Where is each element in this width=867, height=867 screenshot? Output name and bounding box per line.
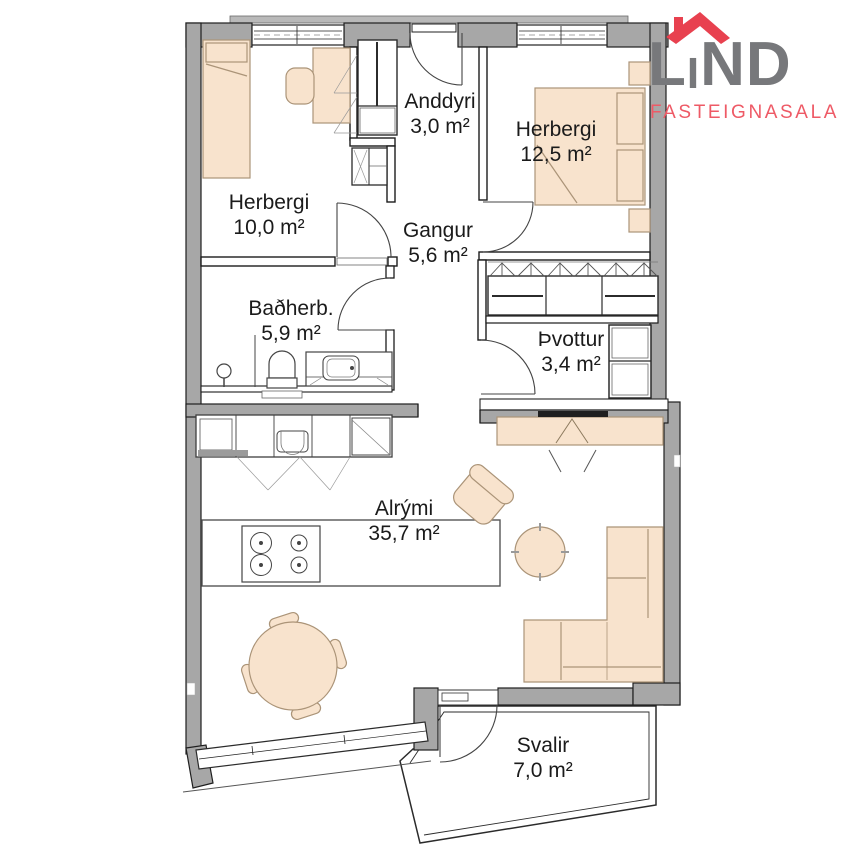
tv-icon bbox=[538, 411, 608, 417]
room-name: Þvottur bbox=[538, 328, 605, 351]
room-label-alrymi: Alrými 35,7 m² bbox=[368, 496, 439, 546]
kitchen-sink bbox=[277, 431, 308, 452]
kitchen-island bbox=[202, 520, 500, 586]
toilet-icon bbox=[267, 351, 297, 388]
brand-subtitle: FASTEIGNASALA bbox=[650, 102, 839, 124]
dining-table bbox=[240, 611, 348, 721]
hall-closet bbox=[488, 262, 658, 315]
room-name: Herbergi bbox=[229, 191, 310, 214]
brand-letters-nd: ND bbox=[700, 34, 792, 96]
room-area: 5,9 m² bbox=[248, 321, 333, 346]
shower-icon bbox=[217, 364, 231, 387]
room-label-thvottur: Þvottur 3,4 m² bbox=[538, 327, 605, 377]
room-label-svalir: Svalir 7,0 m² bbox=[513, 733, 573, 783]
bedroom1-furniture bbox=[203, 40, 350, 178]
tv-sideboard bbox=[497, 411, 663, 472]
room-area: 3,0 m² bbox=[404, 114, 475, 139]
desk-chair bbox=[286, 68, 314, 104]
stove-icon bbox=[242, 526, 320, 582]
room-name: Alrými bbox=[375, 497, 433, 520]
laundry-door bbox=[481, 340, 535, 394]
room-area: 10,0 m² bbox=[229, 215, 310, 240]
room-area: 5,6 m² bbox=[403, 243, 473, 268]
room-label-gangur: Gangur 5,6 m² bbox=[403, 218, 473, 268]
desk bbox=[313, 48, 350, 123]
side-table bbox=[511, 523, 569, 581]
room-name: Gangur bbox=[403, 219, 473, 242]
brand-wordmark: L I ND bbox=[648, 34, 792, 96]
brand-letter-i: I bbox=[687, 52, 700, 96]
bedroom1-door bbox=[337, 203, 391, 257]
room-label-anddyri: Anddyri 3,0 m² bbox=[404, 89, 475, 139]
entrance-door bbox=[410, 33, 462, 85]
bedroom2-door bbox=[483, 202, 533, 252]
room-label-badherb: Baðherb. 5,9 m² bbox=[248, 296, 333, 346]
room-name: Herbergi bbox=[516, 118, 597, 141]
room-area: 7,0 m² bbox=[513, 758, 573, 783]
room-area: 35,7 m² bbox=[368, 521, 439, 546]
room-area: 3,4 m² bbox=[538, 352, 605, 377]
bathroom-door bbox=[338, 278, 393, 330]
lind-logo: L I ND FASTEIGNASALA bbox=[640, 6, 845, 124]
brand-letter-l: L bbox=[648, 34, 687, 96]
room-name: Svalir bbox=[517, 734, 570, 757]
kitchen-counter bbox=[196, 415, 392, 490]
washer-dryer bbox=[609, 325, 651, 398]
room-label-herbergi2: Herbergi 12,5 m² bbox=[516, 117, 597, 167]
sink-vanity bbox=[306, 352, 392, 386]
room-label-herbergi1: Herbergi 10,0 m² bbox=[229, 190, 310, 240]
room-area: 12,5 m² bbox=[516, 142, 597, 167]
floor-plan-page: Anddyri 3,0 m² Herbergi 12,5 m² Herbergi… bbox=[0, 0, 867, 867]
room-name: Baðherb. bbox=[248, 297, 333, 320]
single-bed bbox=[203, 40, 250, 178]
room-name: Anddyri bbox=[404, 90, 475, 113]
